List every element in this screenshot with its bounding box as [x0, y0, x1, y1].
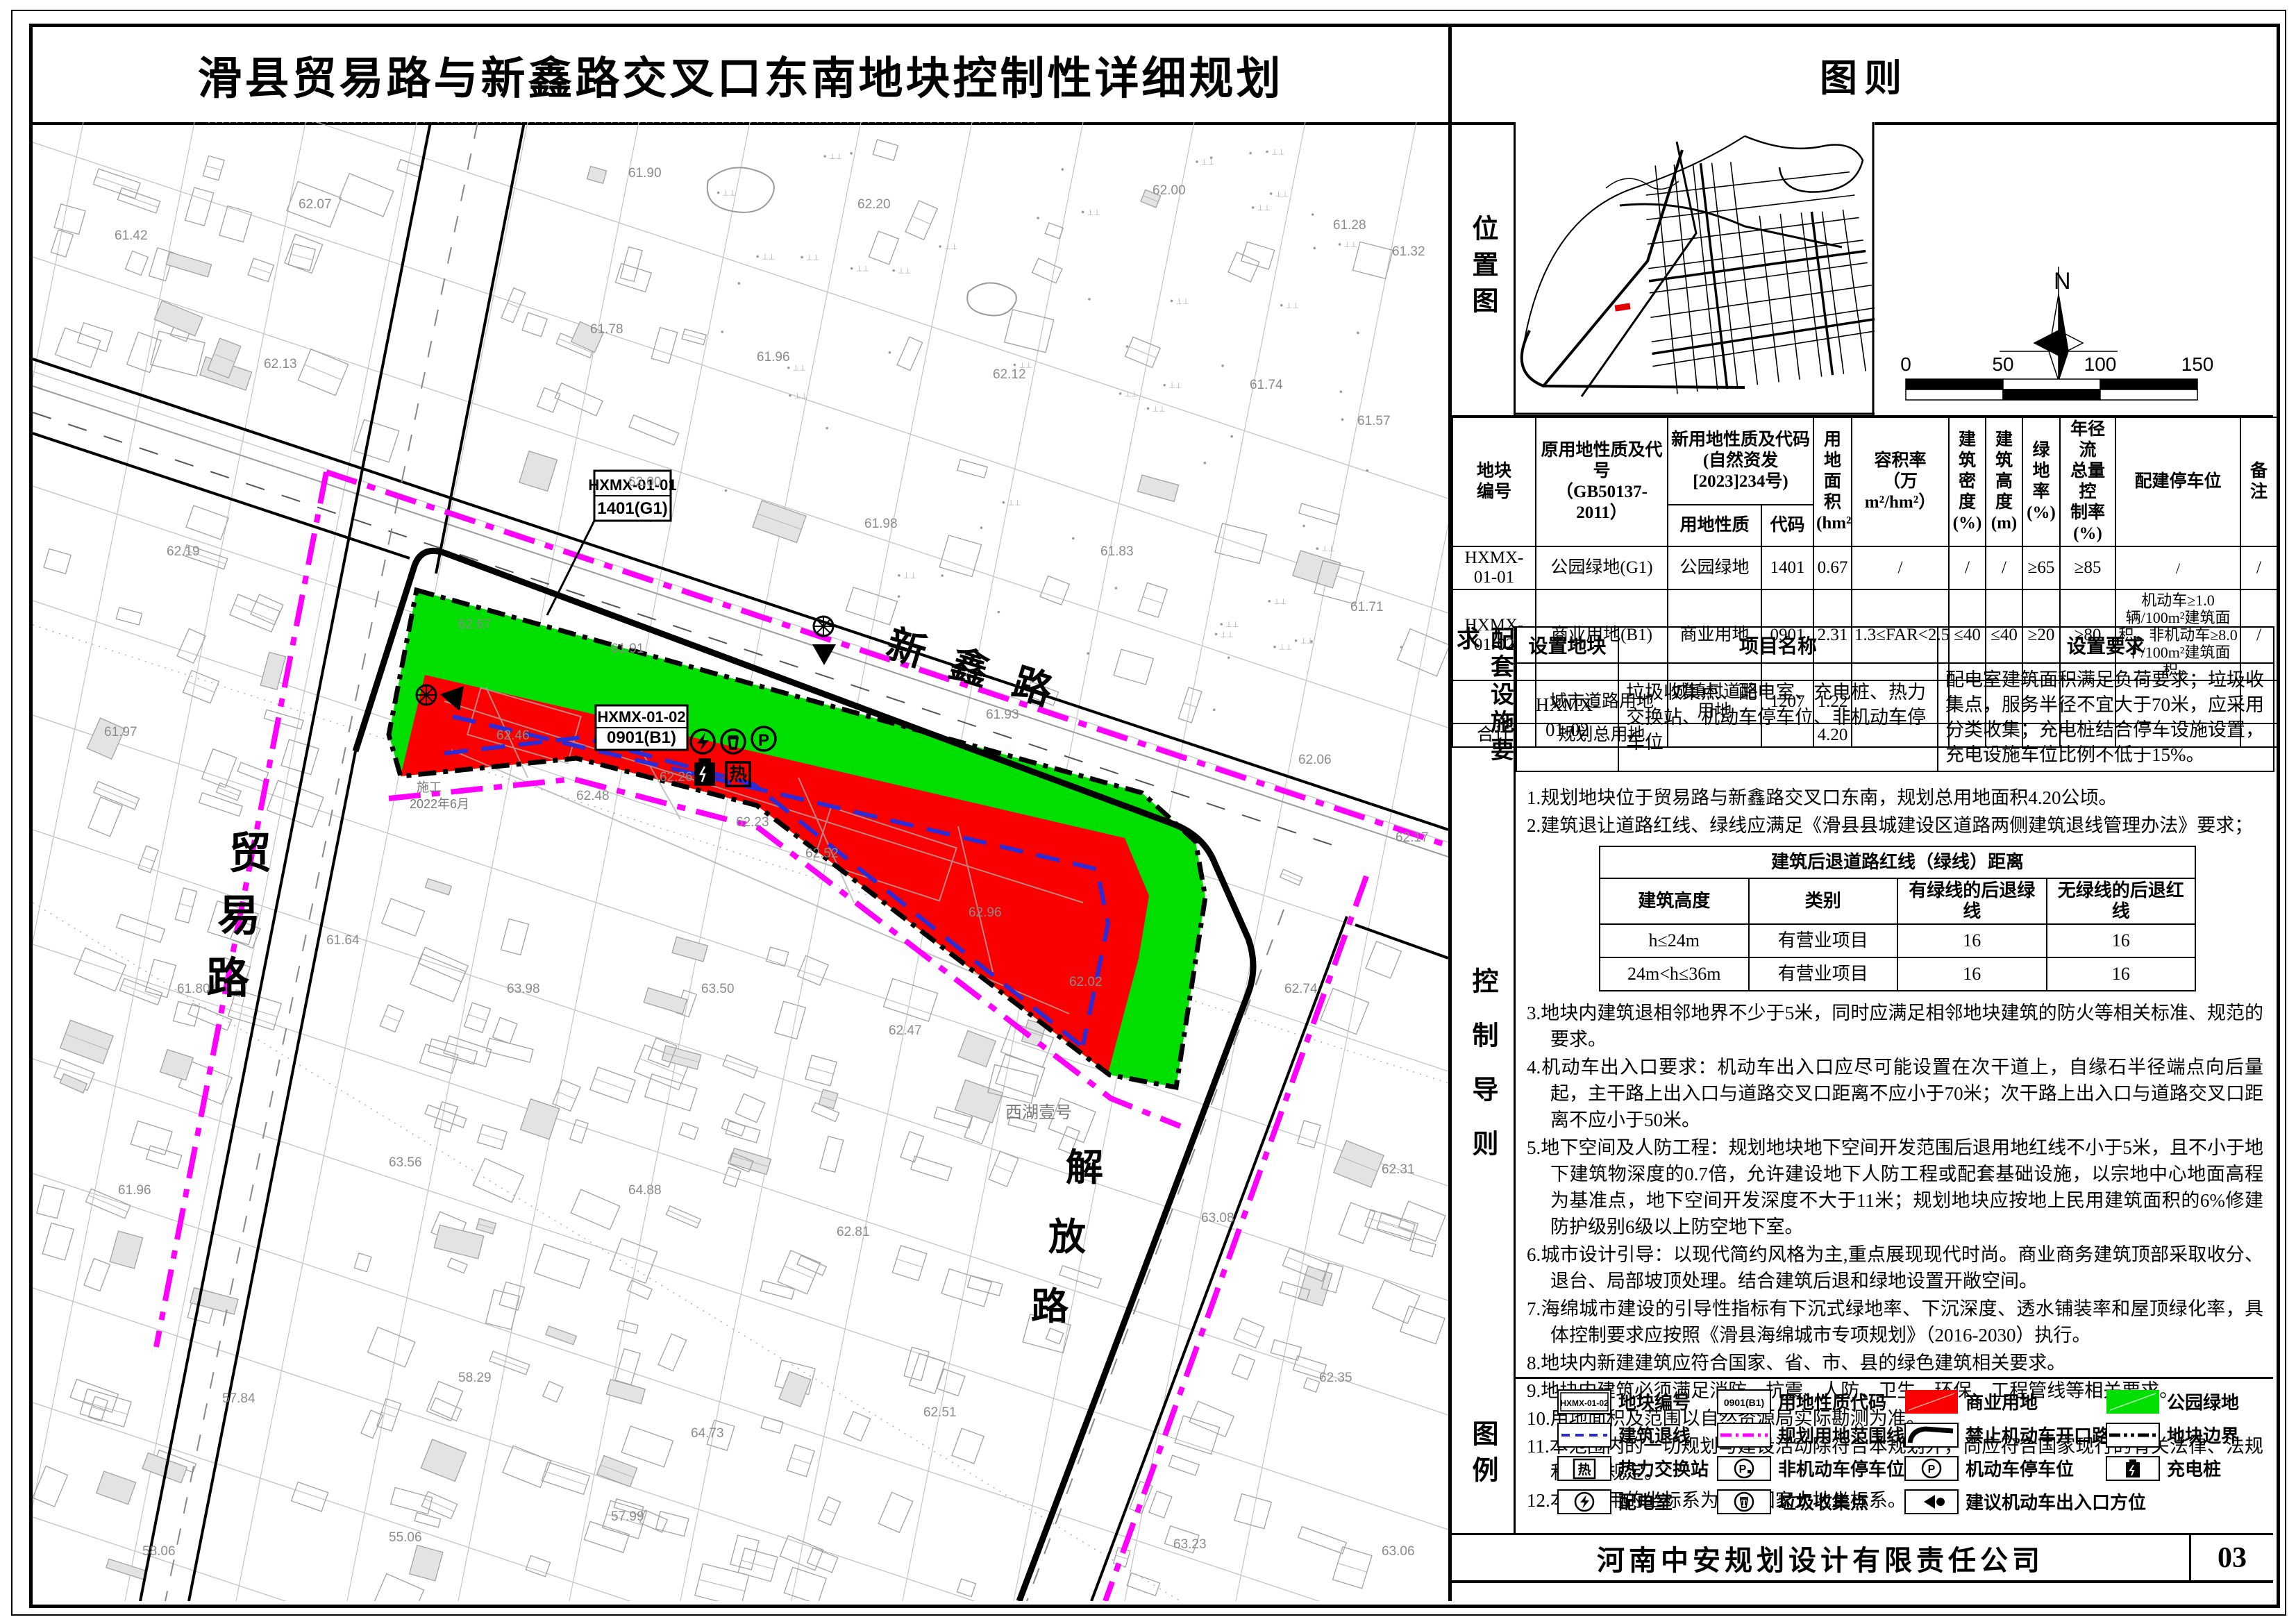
table-cell: 1401 [1761, 546, 1813, 589]
setback-cell: 有营业项目 [1749, 924, 1898, 957]
table-cell: 公园绿地(G1) [1536, 546, 1668, 589]
section-legend: 图例 [1452, 1379, 1516, 1533]
heat-exchange-station-icon: 热 [1557, 1456, 1611, 1481]
svg-text:⊥⊥: ⊥⊥ [1153, 405, 1166, 413]
legend-item: 热热力交换站 [1557, 1455, 1709, 1481]
section-location: 位置图 [1452, 122, 1516, 415]
elevation-label: 55.06 [389, 1530, 422, 1545]
svg-text:⊥⊥: ⊥⊥ [1300, 637, 1314, 646]
legend-item: P机动车停车位 [1904, 1455, 2074, 1481]
svg-text:⊥⊥: ⊥⊥ [806, 253, 819, 262]
legend-grid: HXMX-01-02地块编号0901(B1)用地性质代码商业用地公园绿地建筑退线… [1516, 1379, 2273, 1533]
guideline-note: 2.建筑退让道路红线、绿线应满足《滑县县城建设区道路两侧建筑退线管理办法》要求； [1527, 812, 2263, 839]
legend-item: 建议机动车出入口方位 [1904, 1489, 2146, 1514]
elevation-label: 62.20 [857, 197, 891, 212]
elevation-label: 61.96 [757, 350, 790, 365]
road-name-label: 路 [1031, 1286, 1069, 1328]
guideline-note: 5.地下空间及人防工程：规划地块地下空间开发范围后退用地红线不小于5米，且不小于… [1527, 1135, 2263, 1240]
setback-cell: 有营业项目 [1749, 957, 1898, 991]
legend-item: 配电室 [1557, 1489, 1673, 1514]
legend-label: 配电室 [1618, 1489, 1673, 1514]
table-cell: HXMX-01-01 [1452, 546, 1536, 589]
elevation-label: 62.12 [993, 367, 1026, 382]
setback-table: 建筑后退道路红线（绿线）距离建筑高度类别有绿线的后退绿线无绿线的后退红线h≤24… [1599, 846, 2196, 991]
legend-item: HXMX-01-02地块编号 [1557, 1389, 1691, 1414]
elevation-label: 62.48 [576, 789, 610, 803]
elevation-label: 61.32 [1392, 244, 1425, 259]
setback-cell: 16 [1897, 924, 2047, 957]
map-annotation: 施工 [417, 780, 442, 794]
setback-cell: 16 [2047, 957, 2196, 991]
elevation-label: 64.88 [628, 1183, 662, 1198]
elevation-label: 62.51 [923, 1405, 957, 1420]
guideline-note: 3.地块内建筑退相邻地界不少于5米，同时应满足相邻地块建筑的防火等相关标准、规范… [1527, 1000, 2263, 1053]
svg-text:50: 50 [1992, 353, 2013, 375]
elevation-label: 62.13 [264, 357, 297, 371]
maoyi-road-west-edge [140, 122, 430, 1601]
table-cell: / [2115, 546, 2240, 589]
svg-text:⊥⊥: ⊥⊥ [1271, 149, 1284, 157]
legend-item: P非机动车停车位 [1717, 1455, 1904, 1481]
elevation-label: 62.00 [1153, 183, 1186, 198]
elevation-label: 61.98 [864, 517, 898, 531]
table-cell: ≥65 [2022, 546, 2060, 589]
svg-text:⊥⊥: ⊥⊥ [1257, 204, 1271, 212]
elevation-label: 61.97 [104, 725, 137, 739]
setback-cell: 16 [2047, 924, 2196, 957]
elevation-label: 61.57 [1357, 414, 1391, 428]
svg-text:0: 0 [1900, 353, 1911, 375]
elevation-label: 63.08 [1201, 1211, 1234, 1225]
svg-text:⊥⊥: ⊥⊥ [1321, 545, 1334, 553]
elevation-label: 61.83 [1100, 544, 1134, 559]
legend-label: 商业用地 [1966, 1389, 2038, 1414]
road-name-label: 贸 [228, 830, 271, 878]
elevation-label: 62.00 [628, 475, 662, 489]
building-setback-line-icon [1557, 1423, 1611, 1448]
svg-text:⊥⊥: ⊥⊥ [1125, 390, 1138, 399]
svg-text:⊥⊥: ⊥⊥ [794, 392, 807, 401]
legend-item: 公园绿地 [2106, 1389, 2239, 1414]
svg-text:⊥⊥: ⊥⊥ [1275, 190, 1289, 199]
plot-label-line2: 0901(B1) [607, 728, 676, 747]
col-header: 原用地性质及代号 （GB50137-2011） [1536, 417, 1668, 546]
elevation-label: 63.56 [389, 1155, 422, 1170]
legend-label: 禁止机动车开口路段 [1966, 1422, 2128, 1448]
elevation-label: 63.23 [1173, 1537, 1207, 1552]
elevation-label: 62.35 [1319, 1371, 1352, 1385]
svg-text:N: N [2054, 268, 2071, 294]
elevation-label: 62.81 [837, 1225, 870, 1239]
table-cell: / [1852, 546, 1949, 589]
table-cell: / [1949, 546, 1986, 589]
plot-number-box-icon: HXMX-01-02 [1557, 1389, 1611, 1414]
svg-text:150: 150 [2181, 353, 2214, 375]
company-name: 河南中安规划设计有限责任公司 [1452, 1535, 2191, 1580]
elevation-label: 61.42 [115, 228, 148, 243]
svg-text:⊥⊥: ⊥⊥ [1273, 598, 1287, 606]
elevation-label: 62.23 [736, 815, 769, 830]
fac-cell: HXMX-01-02 [1516, 663, 1618, 771]
elevation-label: 61.28 [1333, 218, 1366, 233]
svg-text:P: P [1928, 1464, 1936, 1475]
svg-text:⊥⊥: ⊥⊥ [1221, 630, 1234, 639]
map-annotation: 2022年6月 [410, 797, 469, 811]
setback-table-title: 建筑后退道路红线（绿线）距离 [1600, 846, 2195, 878]
no-curb-cut-segment-icon [1904, 1423, 1959, 1448]
col-header: 年径流 总量控 制率(%) [2060, 417, 2115, 546]
col-header: 建筑 高度 (m) [1986, 417, 2022, 546]
elevation-label: 61.91 [611, 642, 644, 656]
garbage-collection-point-icon [1717, 1489, 1771, 1514]
svg-text:⊥⊥: ⊥⊥ [903, 572, 916, 580]
legend-label: 公园绿地 [2167, 1389, 2239, 1414]
section-guidelines-label: 控制导则 [1464, 967, 1502, 1184]
elevation-label: 62.02 [1069, 975, 1103, 989]
svg-text:⊥⊥: ⊥⊥ [1286, 302, 1299, 310]
setback-header: 建筑高度 [1600, 878, 1749, 924]
setback-row: h≤24m有营业项目1616 [1600, 924, 2195, 957]
col-header: 绿地 率 (%) [2022, 417, 2060, 546]
elevation-label: 63.98 [507, 982, 540, 996]
road-name-label: 鑫 [945, 641, 995, 694]
guideline-note: 7.海绵城市建设的引导性指标有下沉式绿地率、下沉深度、透水铺装率和屋顶绿化率，具… [1527, 1296, 2263, 1348]
svg-text:⊥⊥: ⊥⊥ [723, 190, 736, 198]
setback-header: 有绿线的后退绿线 [1897, 878, 2047, 924]
sheet-number: 03 [2191, 1535, 2273, 1580]
sub-col-header: 用地性质 [1668, 505, 1761, 546]
setback-header: 类别 [1749, 878, 1898, 924]
elevation-label: 58.29 [458, 1371, 492, 1385]
title-block: 河南中安规划设计有限责任公司 03 [1452, 1533, 2273, 1583]
elevation-label: 62.07 [299, 197, 332, 212]
map-annotation: 西湖壹号 [1005, 1103, 1072, 1122]
elevation-label: 62.31 [1382, 1162, 1415, 1177]
table-cell: ≥85 [2060, 546, 2115, 589]
legend-item: 地块边界 [2106, 1422, 2239, 1448]
col-header: 新用地性质及代码 (自然资发[2023]234号) [1668, 417, 1813, 505]
col-header: 配建停车位 [2115, 417, 2240, 546]
legend-label: 垃圾收集点 [1778, 1489, 1868, 1514]
banner-bar: 图则 [1452, 27, 2277, 125]
setback-row: 24m<h≤36m有营业项目1616 [1600, 957, 2195, 991]
svg-text:100: 100 [2084, 353, 2117, 375]
elevation-label: 58.06 [142, 1544, 176, 1559]
elevation-label: 62.46 [496, 728, 530, 743]
facilities-table: 设置地块项目名称设置要求HXMX-01-02垃圾收集点、配电室、充电桩、热力交换… [1516, 626, 2274, 772]
legend-label: 规划用地范围线 [1778, 1422, 1904, 1448]
svg-text:⊥⊥: ⊥⊥ [944, 243, 957, 251]
elevation-label: 61.96 [118, 1183, 151, 1198]
elevation-label: 57.99 [611, 1509, 644, 1524]
legend-item: 商业用地 [1904, 1389, 2038, 1414]
road-name-label: 放 [1048, 1216, 1086, 1258]
table-cell: / [1986, 546, 2022, 589]
commercial-swatch-icon [1904, 1389, 1959, 1414]
road-name-label: 路 [1007, 660, 1058, 714]
section-facilities: 配套设施要求 [1452, 626, 1516, 772]
landuse-code-box-icon: 0901(B1) [1717, 1389, 1771, 1414]
svg-text:⊥⊥: ⊥⊥ [1176, 297, 1189, 305]
elevation-label: 61.64 [326, 933, 360, 948]
road-name-label: 新 [882, 621, 932, 675]
guideline-note: 6.城市设计引导：以现代简约风格为主,重点展现现代时尚。商业商务建筑顶部采取收分… [1527, 1241, 2263, 1294]
svg-text:⊥⊥: ⊥⊥ [1007, 499, 1021, 508]
svg-text:⊥⊥: ⊥⊥ [1087, 208, 1100, 217]
park-green-swatch-icon [2106, 1389, 2160, 1414]
elevation-label: 61.74 [1250, 378, 1283, 392]
plot-label-line1: HXMX-01-02 [597, 708, 685, 726]
svg-text:⊥⊥: ⊥⊥ [1343, 241, 1357, 249]
elevation-label: 61.78 [590, 322, 623, 337]
svg-text:⊥⊥: ⊥⊥ [762, 253, 775, 261]
svg-text:⊥⊥: ⊥⊥ [1225, 621, 1239, 629]
col-header: 用地 面积 (hm²) [1813, 417, 1852, 546]
elevation-label: 62.19 [167, 544, 200, 559]
plan-sheet: 滑县贸易路与新鑫路交叉口东南地块控制性详细规划 图则 ⊥⊥⊥⊥⊥⊥⊥⊥⊥⊥⊥⊥⊥… [0, 0, 2296, 1624]
col-header: 备注 [2240, 417, 2277, 546]
elevation-label: 63.50 [701, 982, 735, 996]
section-legend-label: 图例 [1464, 1420, 1502, 1492]
plan-map: ⊥⊥⊥⊥⊥⊥⊥⊥⊥⊥⊥⊥⊥⊥⊥⊥⊥⊥⊥⊥⊥⊥⊥⊥⊥⊥⊥⊥⊥⊥⊥⊥⊥⊥⊥⊥⊥⊥⊥⊥… [33, 122, 1448, 1601]
svg-text:P: P [758, 731, 769, 750]
guideline-note: 8.地块内新建建筑应符合国家、省、市、县的绿色建筑相关要求。 [1527, 1350, 2263, 1376]
legend-item: 充电桩 [2106, 1455, 2221, 1481]
section-guidelines: 控制导则 [1452, 772, 1516, 1379]
table-cell: / [2240, 546, 2277, 589]
elevation-label: 61.80 [177, 982, 210, 996]
table-row: HXMX-01-01公园绿地(G1)公园绿地14010.67///≥65≥85/… [1452, 546, 2277, 589]
elevation-label: 61.71 [1350, 600, 1384, 614]
title-bar: 滑县贸易路与新鑫路交叉口东南地块控制性详细规划 [33, 27, 1448, 125]
fac-cell: 垃圾收集点、配电室、充电桩、热力交换站、机动车停车位、非机动车停车位 [1618, 663, 1938, 771]
setback-cell: 16 [1897, 957, 2047, 991]
legend-label: 用地性质代码 [1778, 1389, 1886, 1414]
north-scale-cell: N 050100150 [1875, 122, 2273, 415]
legend-label: 热力交换站 [1618, 1455, 1709, 1481]
svg-text:P: P [1739, 1464, 1747, 1475]
fac-header: 设置地块 [1516, 627, 1618, 663]
legend-label: 建筑退线 [1618, 1422, 1691, 1448]
col-header: 地块 编号 [1452, 417, 1536, 546]
svg-text:⊥⊥: ⊥⊥ [1279, 644, 1292, 652]
svg-text:⊥⊥: ⊥⊥ [1201, 158, 1214, 167]
setback-header: 无绿线的后退红线 [2047, 878, 2196, 924]
svg-text:⊥⊥: ⊥⊥ [793, 365, 806, 373]
road-name-label: 路 [206, 955, 250, 1003]
block-boundary-line-icon [2106, 1423, 2160, 1448]
legend-item: 0901(B1)用地性质代码 [1717, 1389, 1886, 1414]
elevation-label: 57.84 [222, 1391, 255, 1406]
fac-cell: 配电室建筑面积满足负荷要求；垃圾收集点，服务半径不宜大于70米，应采用分类收集；… [1938, 663, 2274, 771]
road-name-label: 易 [217, 892, 260, 940]
guideline-note: 1.规划地块位于贸易路与新鑫路交叉口东南，规划总用地面积4.20公顷。 [1527, 785, 2263, 811]
planning-boundary-line-icon [1717, 1423, 1771, 1448]
col-header: 建筑 密度 (%) [1949, 417, 1986, 546]
fac-header: 设置要求 [1938, 627, 2274, 663]
elevation-label: 62.06 [1298, 753, 1332, 767]
nonmotor-parking-icon: P [1717, 1456, 1771, 1481]
section-facilities-label: 配套设施要求 [1449, 626, 1517, 772]
elevation-label: 62.96 [969, 905, 1002, 920]
fac-row: HXMX-01-02垃圾收集点、配电室、充电桩、热力交换站、机动车停车位、非机动… [1516, 663, 2274, 771]
banner-title: 图则 [1820, 47, 1909, 102]
suggested-vehicle-entrance-icon [1904, 1489, 1959, 1514]
legend-label: 机动车停车位 [1966, 1455, 2074, 1481]
heat-exchange-icon: 热 [726, 762, 750, 786]
elevation-label: 62.67 [458, 617, 492, 632]
plot-label-line2: 1401(G1) [597, 499, 667, 518]
col-header: 容积率 （万m²/hm²） [1852, 417, 1949, 546]
svg-text:热: 热 [729, 764, 747, 785]
elevation-label: 62.17 [1396, 830, 1429, 845]
motor-parking-icon: P [1904, 1456, 1959, 1481]
svg-text:⊥⊥: ⊥⊥ [898, 267, 911, 276]
location-minimap [1516, 122, 1875, 415]
power-distribution-room-icon [1557, 1489, 1611, 1514]
guideline-note: 4.机动车出入口要求：机动车出入口应尽可能设置在次干道上，自缘石半径端点向后量起… [1527, 1054, 2263, 1133]
page-title: 滑县贸易路与新鑫路交叉口东南地块控制性详细规划 [198, 43, 1284, 107]
svg-text:热: 热 [1577, 1462, 1591, 1477]
legend-label: 充电桩 [2167, 1455, 2221, 1481]
legend-item: 垃圾收集点 [1717, 1489, 1868, 1514]
legend-label: 地块边界 [2167, 1422, 2239, 1448]
svg-text:0901(B1): 0901(B1) [1724, 1397, 1764, 1408]
sub-col-header: 代码 [1761, 505, 1813, 546]
charging-pile-icon [2106, 1456, 2160, 1481]
elevation-label: 62.47 [889, 1023, 922, 1038]
elevation-label: 63.06 [1382, 1544, 1415, 1559]
setback-cell: 24m<h≤36m [1600, 957, 1749, 991]
setback-cell: h≤24m [1600, 924, 1749, 957]
table-cell: 0.67 [1813, 546, 1852, 589]
elevation-label: 62.74 [1284, 982, 1318, 996]
legend-item: 禁止机动车开口路段 [1904, 1422, 2128, 1448]
fac-header: 项目名称 [1618, 627, 1938, 663]
legend-item: 规划用地范围线 [1717, 1422, 1904, 1448]
elevation-label: 61.93 [986, 708, 1019, 722]
road-name-label: 解 [1066, 1147, 1103, 1189]
legend-label: 非机动车停车位 [1778, 1455, 1904, 1481]
legend-item: 建筑退线 [1557, 1422, 1691, 1448]
elevation-label: 64.73 [691, 1426, 724, 1441]
table-cell: 公园绿地 [1668, 546, 1761, 589]
elevation-label: 61.90 [628, 166, 662, 181]
svg-text:HXMX-01-02: HXMX-01-02 [1560, 1398, 1609, 1408]
svg-text:⊥⊥: ⊥⊥ [1168, 382, 1182, 390]
section-location-label: 位置图 [1464, 215, 1502, 323]
svg-text:⊥⊥: ⊥⊥ [829, 153, 842, 161]
charging-pile-icon [696, 760, 714, 785]
legend-label: 地块编号 [1618, 1389, 1691, 1414]
elevation-label: 62.52 [805, 846, 839, 861]
legend-label: 建议机动车出入口方位 [1966, 1489, 2146, 1514]
guidelines-notes: 1.规划地块位于贸易路与新鑫路交叉口东南，规划总用地面积4.20公顷。2.建筑退… [1516, 772, 2273, 1379]
svg-text:⊥⊥: ⊥⊥ [856, 265, 869, 274]
elevation-label: 62.26 [660, 770, 693, 785]
